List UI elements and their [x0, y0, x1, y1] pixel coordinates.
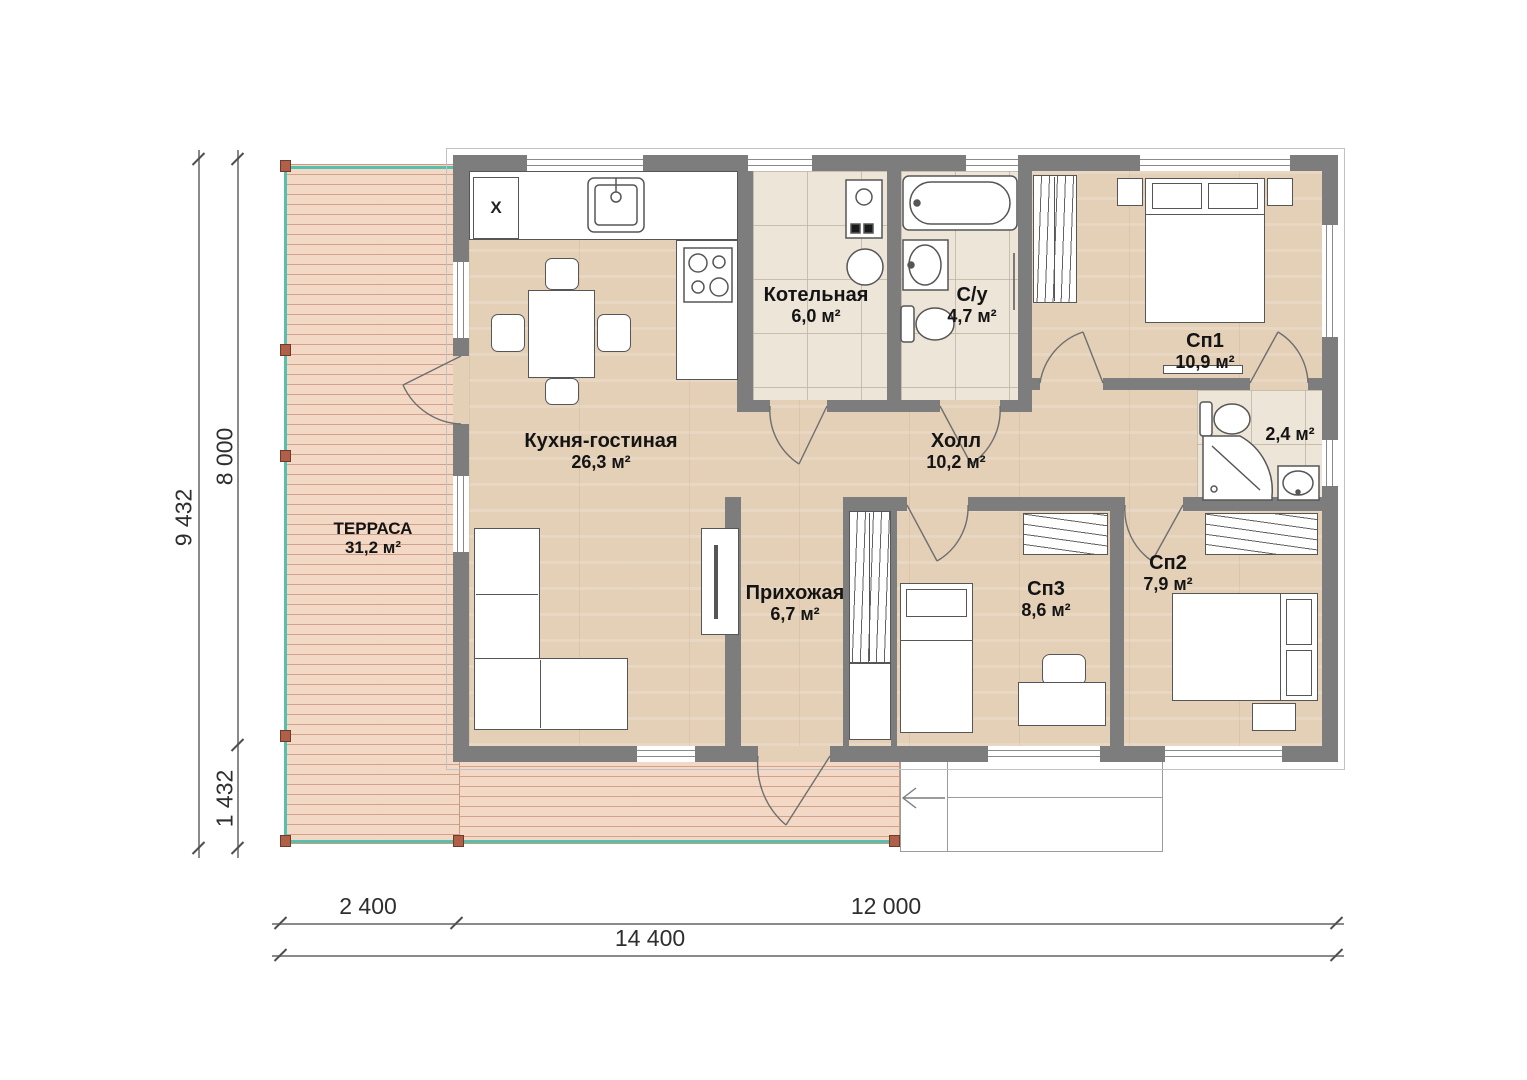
- room-name: Прихожая: [715, 582, 875, 604]
- room-area: 10,9 м²: [1125, 352, 1285, 372]
- dimension-label-1432: 1 432: [212, 754, 239, 844]
- room-label-terrace: ТЕРРАСА 31,2 м²: [283, 519, 463, 557]
- porch-entry-arrow: [903, 788, 945, 808]
- shower-cabin: [1203, 436, 1272, 500]
- boiler-door-arc: [770, 406, 827, 464]
- plan-lineart: [0, 0, 1527, 1080]
- room-label-hall: Холл 10,2 м²: [876, 430, 1036, 473]
- bathtub: [903, 176, 1017, 230]
- bathroom-sink: [903, 240, 948, 290]
- bedroom3-door-arc: [907, 505, 968, 561]
- kitchen-sink: [588, 178, 644, 232]
- room-label-bathroom: С/у 4,7 м²: [912, 284, 1032, 327]
- room-area: 10,2 м²: [876, 452, 1036, 472]
- entrance-door-arc: [758, 756, 830, 825]
- room-name: Кухня-гостиная: [481, 430, 721, 452]
- room-name: С/у: [912, 284, 1032, 306]
- room-name: Холл: [876, 430, 1036, 452]
- bedroom1-door-arc: [1040, 332, 1103, 383]
- terrace-door-arc: [403, 356, 461, 424]
- room-area: 6,7 м²: [715, 604, 875, 624]
- dimension-line-vertical-inner: [237, 150, 239, 858]
- shower-room-sink: [1278, 466, 1319, 500]
- room-area: 2,4 м²: [1230, 424, 1350, 444]
- room-label-bedroom1: Сп1 10,9 м²: [1125, 330, 1285, 373]
- floor-plan: X: [0, 0, 1527, 1080]
- room-name: Сп1: [1125, 330, 1285, 352]
- dimension-label-12000: 12 000: [826, 893, 946, 920]
- room-area: 7,9 м²: [1088, 574, 1248, 594]
- dimension-label-2400: 2 400: [318, 893, 418, 920]
- dimension-label-9432: 9 432: [171, 473, 198, 563]
- room-label-boiler: Котельная 6,0 м²: [736, 284, 896, 327]
- dimension-line-horizontal-lower: [272, 955, 1344, 957]
- room-area: 26,3 м²: [481, 452, 721, 472]
- room-label-kitchen-living: Кухня-гостиная 26,3 м²: [481, 430, 721, 473]
- room-name: Сп2: [1088, 552, 1248, 574]
- dimension-label-8000: 8 000: [212, 412, 239, 502]
- room-area: 31,2 м²: [283, 538, 463, 557]
- boiler-unit: [846, 180, 883, 285]
- room-area: 6,0 м²: [736, 306, 896, 326]
- room-area: 8,6 м²: [966, 600, 1126, 620]
- room-label-hallway: Прихожая 6,7 м²: [715, 582, 875, 625]
- dimension-line-horizontal-upper: [272, 923, 1344, 925]
- room-name: Котельная: [736, 284, 896, 306]
- room-name: ТЕРРАСА: [283, 519, 463, 538]
- stove: [684, 248, 732, 302]
- room-area: 4,7 м²: [912, 306, 1032, 326]
- dimension-label-14400: 14 400: [590, 925, 710, 952]
- dimension-line-vertical-outer: [198, 150, 200, 858]
- room-label-shower-room: 2,4 м²: [1230, 424, 1350, 444]
- room-label-bedroom2: Сп2 7,9 м²: [1088, 552, 1248, 595]
